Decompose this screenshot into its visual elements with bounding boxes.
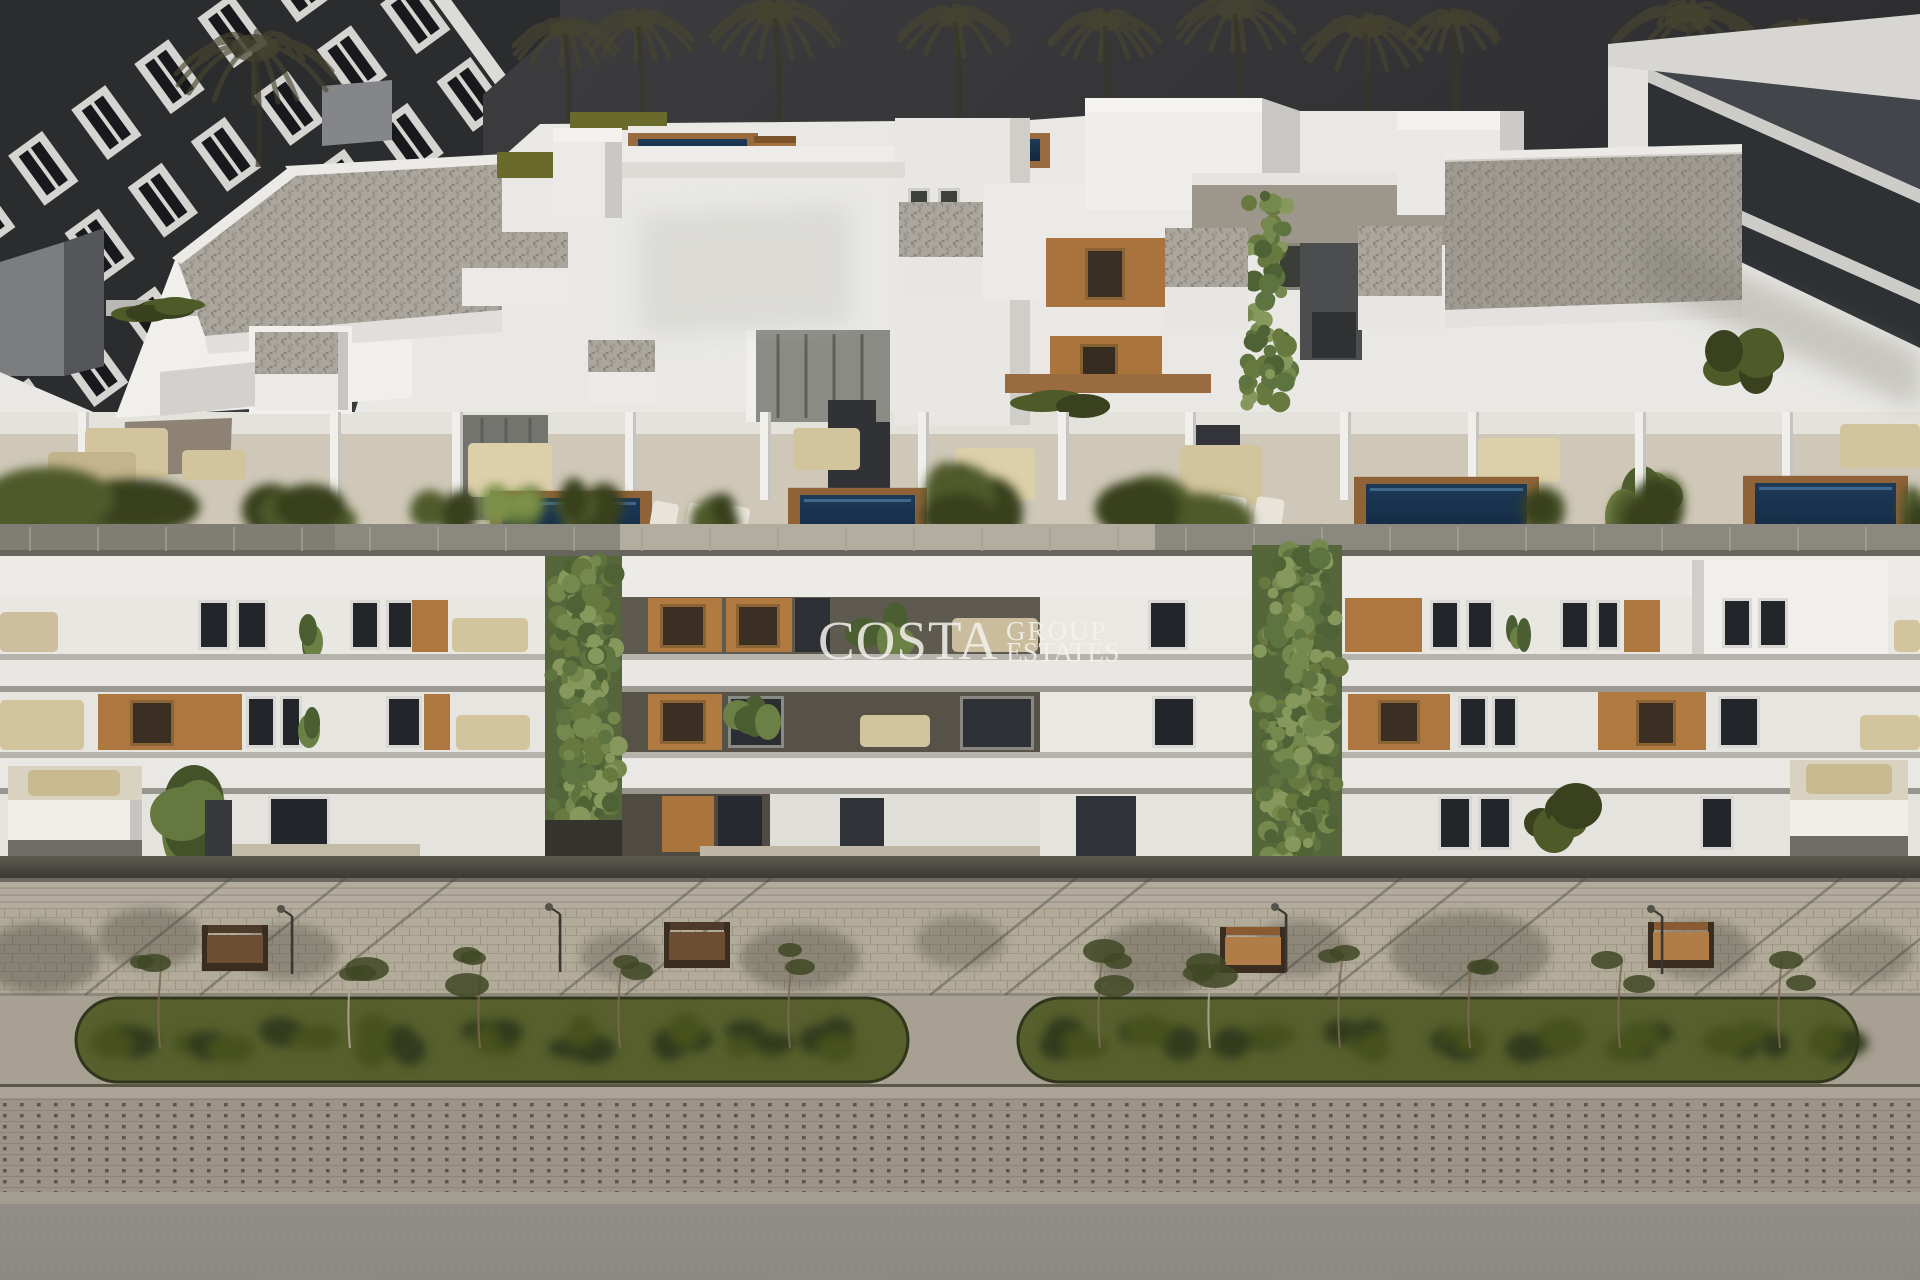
svg-text:ESTATES: ESTATES — [1006, 637, 1120, 667]
svg-text:COSTA: COSTA — [818, 610, 999, 671]
